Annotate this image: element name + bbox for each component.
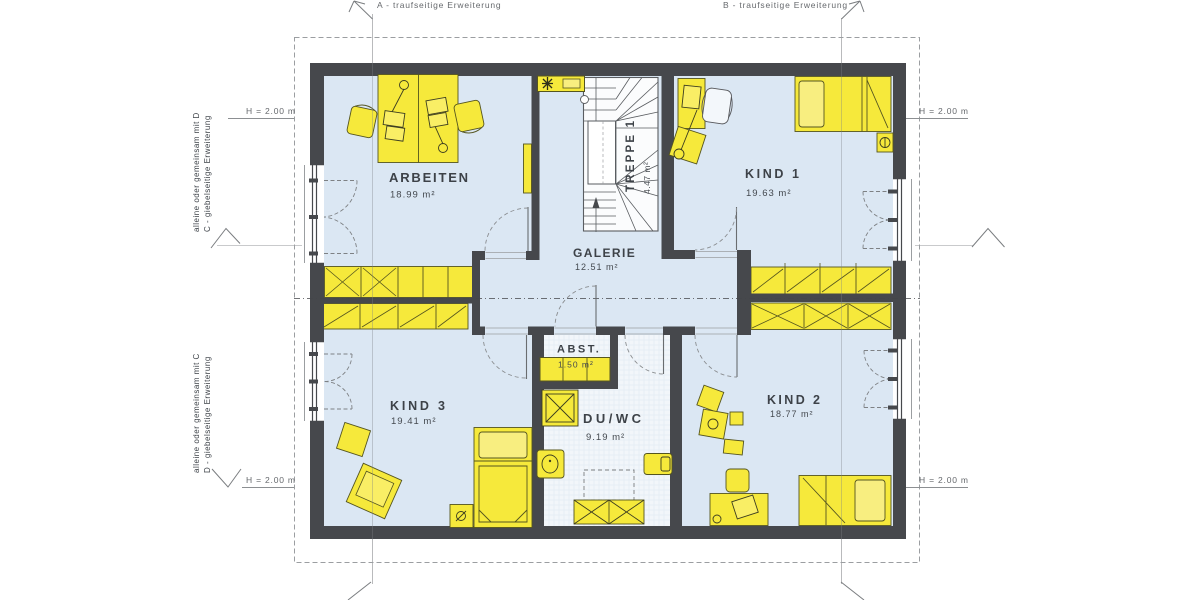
svg-text:KIND 1: KIND 1 [745, 167, 802, 181]
svg-text:alleine oder gemeinsam mit D: alleine oder gemeinsam mit D [192, 112, 201, 232]
svg-text:4.47 m²: 4.47 m² [642, 162, 652, 194]
svg-text:alleine oder gemeinsam mit C: alleine oder gemeinsam mit C [192, 353, 201, 473]
svg-text:H = 2.00 m: H = 2.00 m [919, 475, 969, 485]
svg-text:DU/WC: DU/WC [583, 411, 645, 426]
svg-text:12.51 m²: 12.51 m² [575, 262, 619, 272]
svg-text:TREPPE 1: TREPPE 1 [625, 119, 637, 192]
svg-text:18.77 m²: 18.77 m² [770, 409, 814, 419]
svg-text:H = 2.00 m: H = 2.00 m [246, 106, 296, 116]
svg-text:C - giebelseitige Erweiterung: C - giebelseitige Erweiterung [203, 115, 212, 232]
svg-text:KIND 2: KIND 2 [767, 393, 822, 407]
svg-text:ARBEITEN: ARBEITEN [389, 170, 470, 185]
svg-text:19.41 m²: 19.41 m² [391, 416, 437, 427]
svg-text:H = 2.00 m: H = 2.00 m [246, 475, 296, 485]
svg-text:18.99 m²: 18.99 m² [390, 190, 436, 201]
svg-text:H = 2.00 m: H = 2.00 m [919, 106, 969, 116]
svg-text:19.63 m²: 19.63 m² [746, 188, 792, 199]
svg-text:B - traufseitige Erweiterung: B - traufseitige Erweiterung [723, 0, 848, 10]
svg-text:A - traufseitige Erweiterung: A - traufseitige Erweiterung [377, 0, 501, 10]
svg-text:GALERIE: GALERIE [573, 246, 636, 260]
svg-text:D - giebelseitige Erweiterung: D - giebelseitige Erweiterung [203, 356, 212, 473]
svg-text:ABST.: ABST. [557, 344, 601, 356]
svg-text:9.19 m²: 9.19 m² [586, 432, 625, 443]
svg-text:KIND 3: KIND 3 [390, 399, 448, 413]
svg-text:1.50 m²: 1.50 m² [558, 360, 594, 370]
